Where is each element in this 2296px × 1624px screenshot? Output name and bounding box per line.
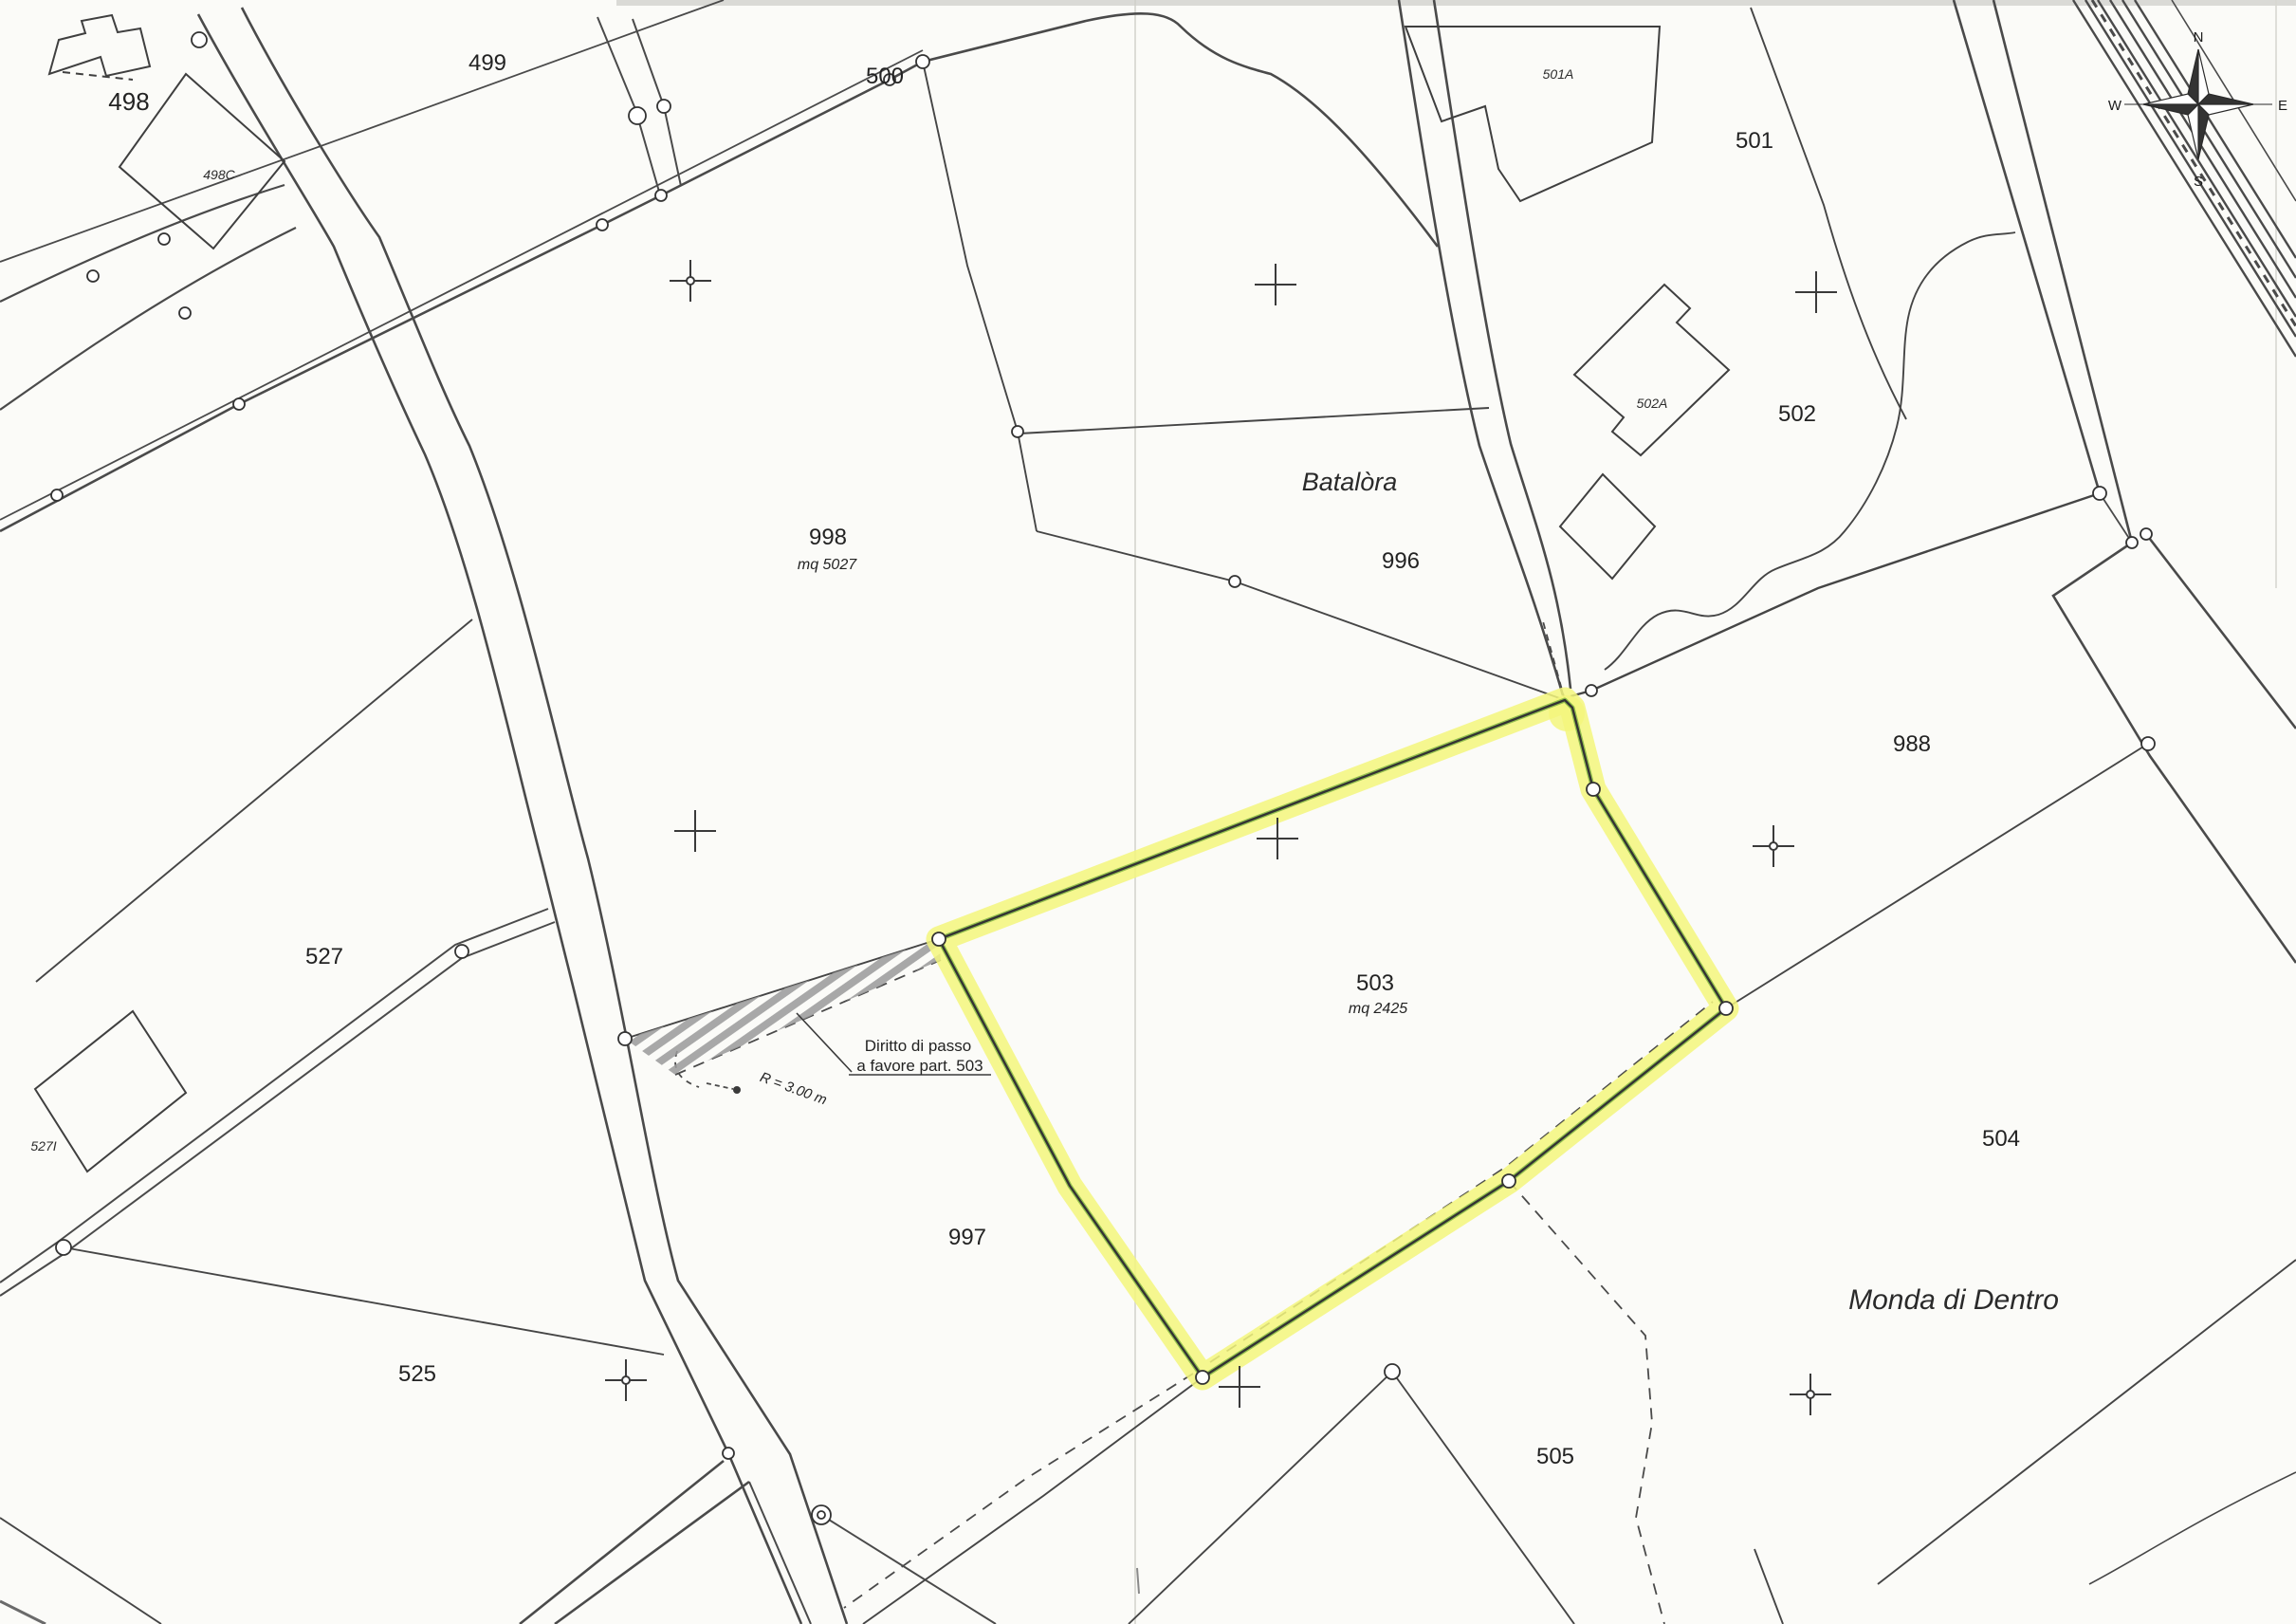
scan-artifacts — [0, 0, 2296, 1624]
node-road-lower-edge — [0, 13, 1438, 531]
parcel-label-996: 996 — [1382, 548, 1420, 574]
area-label-503: mq 2425 — [1349, 1001, 1407, 1017]
compass-e-label: E — [2278, 98, 2287, 114]
parcel-label-499: 499 — [468, 50, 506, 76]
parcel-label-502: 502 — [1778, 401, 1816, 427]
place-label-batalora: Batalòra — [1302, 468, 1398, 496]
compass-w-label: W — [2108, 98, 2122, 114]
area-label-998: mq 5027 — [798, 557, 857, 573]
building-label-502a: 502A — [1637, 396, 1668, 411]
buildings — [35, 15, 1729, 1172]
parcel-boundaries — [0, 8, 2296, 1624]
parcel-label-504: 504 — [1982, 1126, 2020, 1152]
building-label-501a: 501A — [1543, 66, 1574, 82]
compass-n-label: N — [2194, 29, 2204, 46]
compass-rose — [2124, 49, 2272, 159]
parcel-label-505: 505 — [1536, 1444, 1574, 1469]
parcel-label-998: 998 — [809, 525, 847, 550]
compass-s-label: S — [2194, 174, 2203, 190]
radius-note: R = 3.00 m — [758, 1069, 829, 1108]
building-527 — [35, 1011, 186, 1172]
roads-layer — [0, 0, 2296, 1624]
labels-layer: 498 498C 499 500 501A 501 502A 502 Batal… — [30, 50, 2059, 1469]
parcel-label-525: 525 — [398, 1361, 436, 1387]
main-road-left-edge — [198, 14, 801, 1624]
parcel-label-997: 997 — [948, 1225, 986, 1250]
parcel-label-501: 501 — [1736, 128, 1773, 154]
building-501a — [1405, 27, 1660, 201]
cadastral-map-canvas[interactable]: N E S W — [0, 0, 2296, 1624]
parcel-label-500: 500 — [866, 64, 904, 89]
building-502a — [1574, 285, 1729, 455]
building-label-498c: 498C — [203, 167, 235, 182]
place-label-monda: Monda di Dentro — [1848, 1284, 2059, 1316]
parcel-label-988: 988 — [1893, 731, 1931, 757]
stream-curve — [1605, 232, 2015, 670]
parcel-503-highlight[interactable] — [939, 695, 1726, 1377]
right-of-way-note-line2: a favore part. 503 — [856, 1057, 983, 1075]
building-498 — [49, 15, 150, 76]
parcel-label-498: 498 — [108, 87, 149, 116]
right-of-way-note-line1: Diritto di passo — [865, 1037, 971, 1055]
parcel-label-527i: 527I — [30, 1138, 56, 1153]
parcel-label-527: 527 — [305, 944, 343, 969]
railway — [2073, 0, 2296, 357]
dashed-boundaries — [675, 621, 1713, 1624]
parcel-label-503: 503 — [1356, 970, 1394, 996]
main-road-right-edge — [242, 8, 847, 1624]
cadastral-map-page: N E S W — [0, 0, 2296, 1624]
